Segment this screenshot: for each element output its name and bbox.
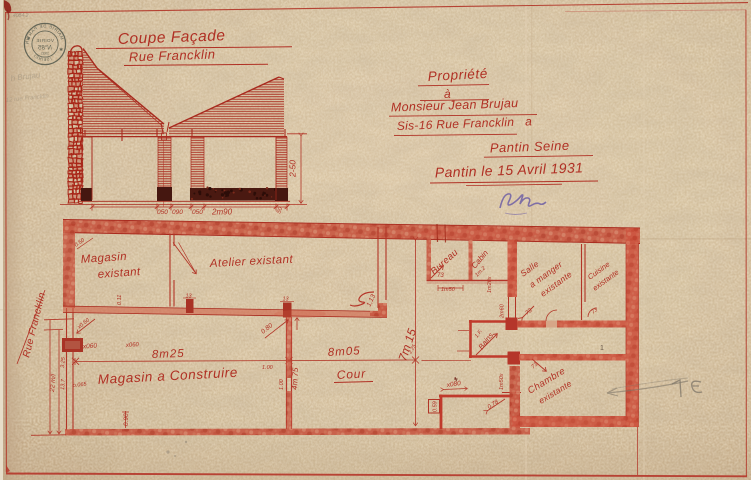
svg-text:Rue Francklin: Rue Francklin bbox=[129, 46, 216, 64]
svg-text:VOIRIE: VOIRIE bbox=[36, 38, 54, 43]
svg-text:8m05: 8m05 bbox=[328, 345, 361, 359]
svg-text:1.00: 1.00 bbox=[279, 378, 285, 390]
svg-text:13.7: 13.7 bbox=[60, 378, 67, 390]
svg-text:x060: x060 bbox=[82, 343, 98, 351]
svg-text:13: 13 bbox=[186, 294, 193, 300]
svg-text:2m60: 2m60 bbox=[500, 303, 506, 319]
svg-text:73: 73 bbox=[437, 273, 444, 279]
svg-text:1m50: 1m50 bbox=[441, 287, 456, 293]
svg-text:1m50x: 1m50x bbox=[499, 373, 505, 390]
svg-text:0.59: 0.59 bbox=[433, 401, 439, 412]
svg-text:3.25: 3.25 bbox=[60, 356, 67, 368]
svg-text:090: 090 bbox=[172, 209, 183, 216]
svg-text:0.90: 0.90 bbox=[123, 413, 130, 426]
svg-text:1.00: 1.00 bbox=[262, 365, 274, 371]
svg-text:✱: ✱ bbox=[27, 36, 31, 41]
svg-text:8m25: 8m25 bbox=[152, 348, 185, 361]
svg-text:Propriété: Propriété bbox=[427, 66, 488, 84]
svg-text:1m20x: 1m20x bbox=[487, 276, 493, 293]
svg-text:Cour: Cour bbox=[336, 366, 366, 382]
svg-text:2m90: 2m90 bbox=[211, 208, 233, 217]
svg-text:N°85: N°85 bbox=[38, 45, 52, 52]
svg-text:4084·2: 4084·2 bbox=[13, 13, 29, 19]
svg-text:050: 050 bbox=[192, 209, 203, 216]
svg-text:1931: 1931 bbox=[41, 52, 49, 56]
svg-text:x060: x060 bbox=[125, 342, 140, 349]
svg-text:Pantin Seine: Pantin Seine bbox=[490, 138, 570, 156]
svg-text:0.11: 0.11 bbox=[117, 295, 123, 305]
svg-text:2-50: 2-50 bbox=[288, 160, 298, 178]
svg-text:4m 75: 4m 75 bbox=[290, 367, 300, 390]
svg-text:050: 050 bbox=[157, 209, 168, 216]
svg-text:1: 1 bbox=[600, 345, 604, 352]
svg-text:✱: ✱ bbox=[59, 47, 63, 52]
